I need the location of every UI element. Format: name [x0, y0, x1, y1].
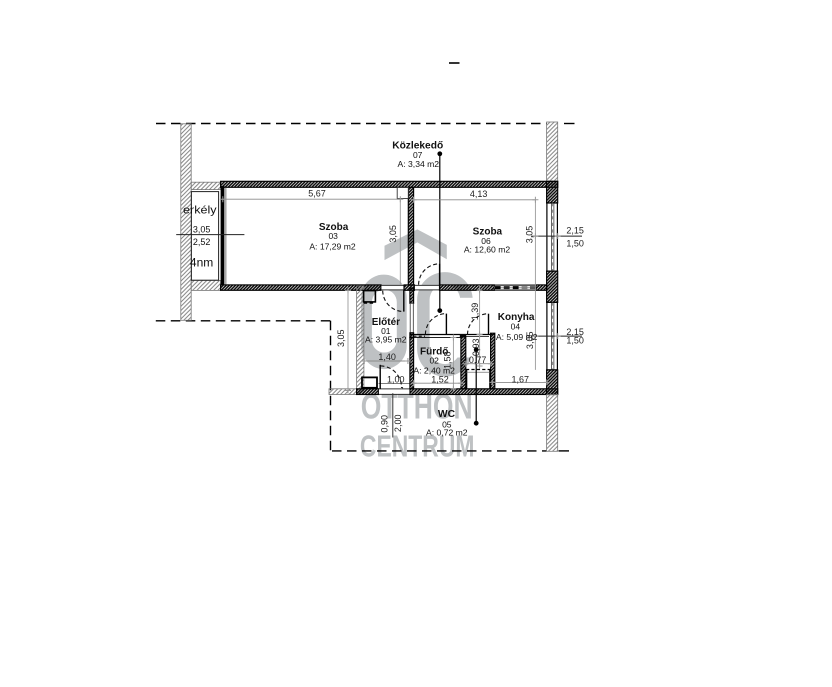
svg-text:3,05: 3,05	[193, 224, 211, 234]
svg-text:1,00: 1,00	[387, 375, 405, 385]
svg-text:02: 02	[429, 356, 439, 366]
svg-text:1,39: 1,39	[470, 303, 480, 321]
svg-text:3,05: 3,05	[336, 329, 346, 347]
svg-text:1,50: 1,50	[566, 335, 584, 345]
svg-text:A: 0,72 m2: A: 0,72 m2	[426, 427, 468, 437]
svg-text:5,67: 5,67	[308, 189, 326, 199]
svg-text:3,05: 3,05	[388, 225, 398, 243]
svg-text:3,05: 3,05	[525, 226, 535, 244]
svg-text:2,00: 2,00	[393, 415, 403, 433]
svg-text:03: 03	[328, 231, 338, 241]
svg-text:04: 04	[511, 322, 521, 332]
svg-text:0,93: 0,93	[471, 339, 481, 357]
svg-text:1,40: 1,40	[378, 352, 396, 362]
svg-text:4,13: 4,13	[470, 189, 488, 199]
svg-text:1,67: 1,67	[512, 375, 530, 385]
svg-text:A: 17,29 m2: A: 17,29 m2	[309, 241, 356, 251]
svg-text:1,58: 1,58	[442, 351, 452, 369]
svg-text:A: 12,60 m2: A: 12,60 m2	[464, 244, 511, 254]
svg-text:4nm: 4nm	[190, 256, 213, 270]
svg-text:A: 3,95 m2: A: 3,95 m2	[365, 335, 407, 345]
svg-text:erkély: erkély	[183, 205, 217, 217]
svg-text:2,52: 2,52	[193, 237, 211, 247]
svg-text:0,90: 0,90	[380, 415, 390, 433]
svg-text:A: 3,34 m2: A: 3,34 m2	[398, 159, 440, 169]
svg-text:2,15: 2,15	[566, 225, 584, 235]
svg-text:1,50: 1,50	[566, 238, 584, 248]
svg-text:3,05: 3,05	[525, 332, 535, 350]
svg-text:1,52: 1,52	[431, 375, 449, 385]
